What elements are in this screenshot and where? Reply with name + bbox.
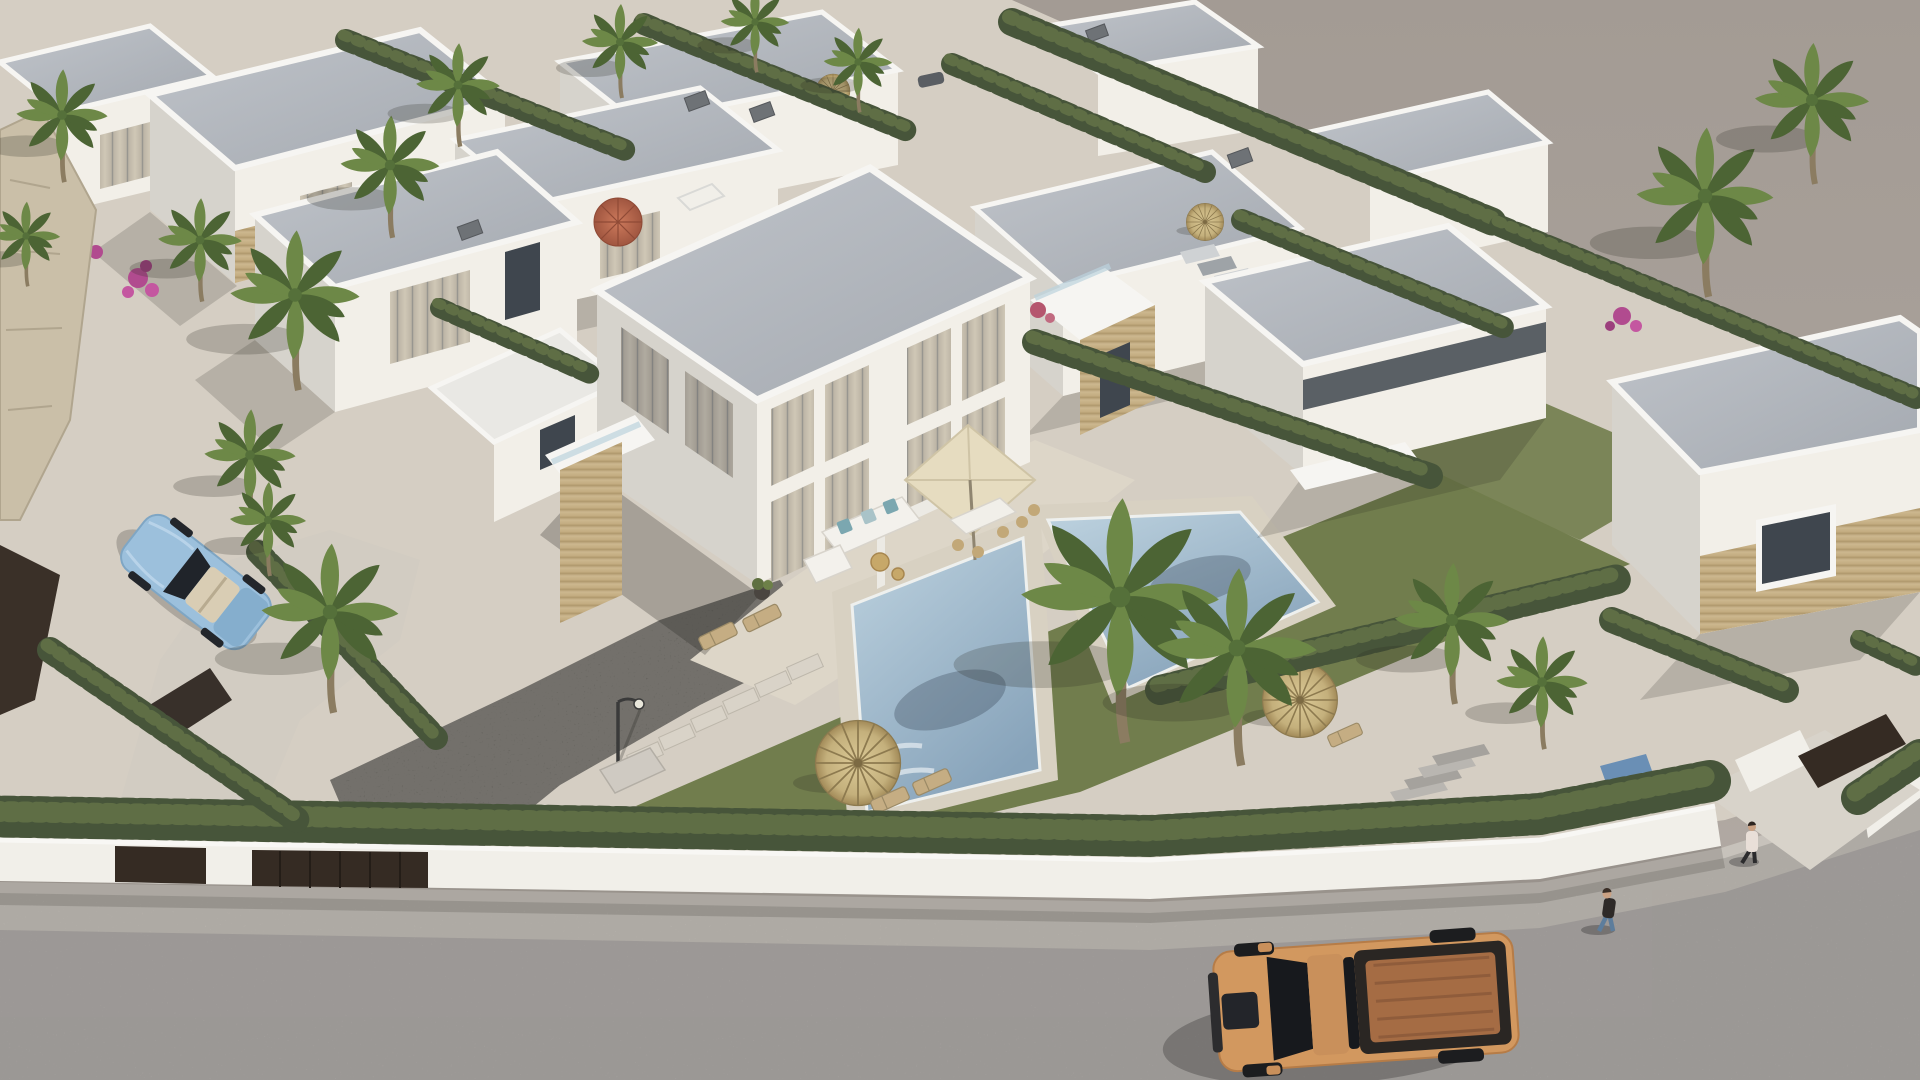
coffee-table-small bbox=[892, 568, 904, 580]
driveway-gate bbox=[252, 850, 428, 888]
red-umbrella bbox=[594, 198, 642, 246]
pedestrian-gate bbox=[115, 846, 206, 884]
aerial-render-stage: Aerial 3D architectural render of a mode… bbox=[0, 0, 1920, 1080]
aerial-render-canvas bbox=[0, 0, 1920, 1080]
coffee-table bbox=[871, 553, 889, 571]
